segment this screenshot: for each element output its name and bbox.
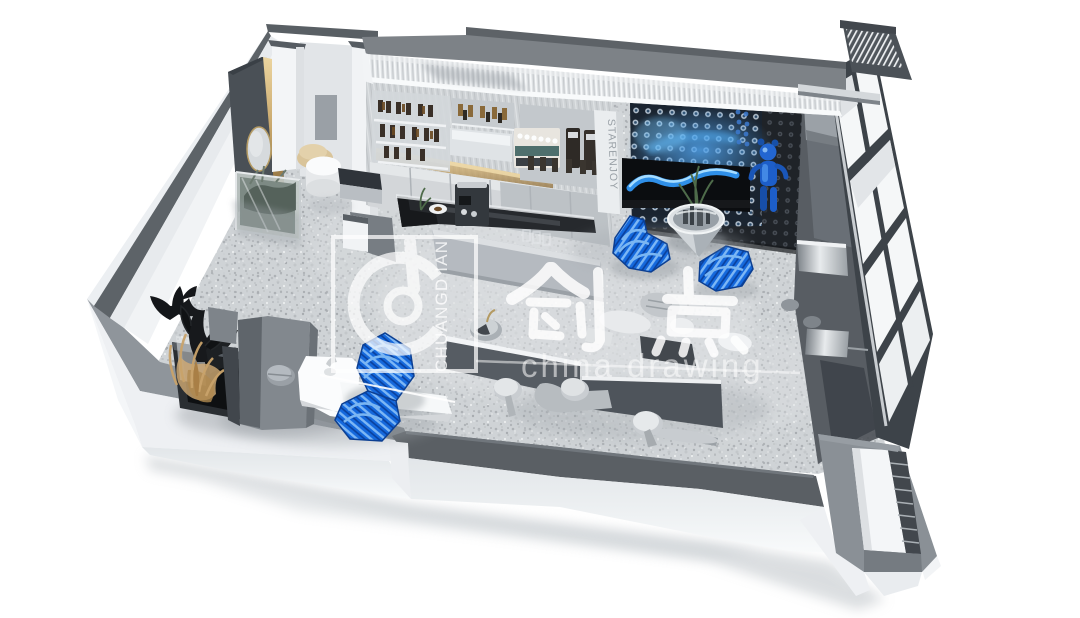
svg-text:STARENJOY: STARENJOY	[605, 119, 619, 191]
svg-text:china drawing: china drawing	[521, 347, 764, 384]
svg-text:CHUANGD IAN: CHUANGD IAN	[432, 240, 451, 372]
